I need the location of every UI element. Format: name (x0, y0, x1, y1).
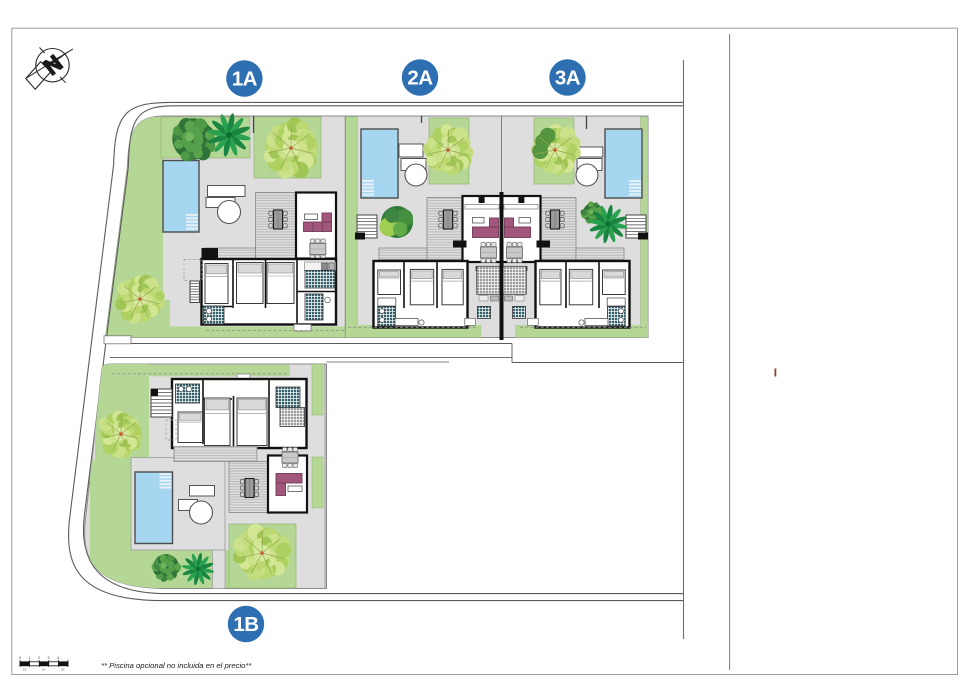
svg-text:30: 30 (61, 668, 65, 672)
svg-text:2A: 2A (407, 67, 433, 90)
svg-text:1: 1 (29, 656, 31, 660)
svg-text:10: 10 (23, 668, 27, 672)
svg-text:3: 3 (48, 656, 50, 660)
svg-text:0: 0 (19, 656, 21, 660)
svg-text:20: 20 (42, 668, 46, 672)
svg-text:1B: 1B (233, 613, 258, 636)
svg-text:4: 4 (57, 656, 59, 660)
svg-text:3A: 3A (555, 67, 581, 90)
svg-text:2: 2 (38, 656, 40, 660)
svg-text:1A: 1A (232, 68, 258, 91)
svg-text:** Piscina opcional no incluid: ** Piscina opcional no incluida en el pr… (101, 661, 252, 670)
